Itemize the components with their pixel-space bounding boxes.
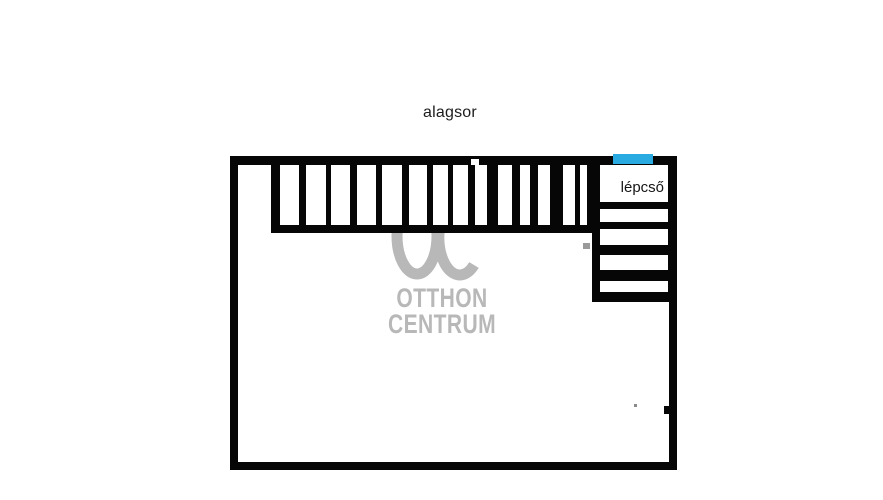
entrance-marker bbox=[613, 154, 653, 164]
storage-cells bbox=[271, 156, 600, 233]
storage-cell bbox=[538, 165, 550, 225]
stair-step bbox=[600, 255, 668, 270]
oc-logo-icon bbox=[0, 0, 883, 500]
staircase bbox=[592, 156, 677, 302]
watermark-line-1: OTTHON bbox=[364, 285, 520, 312]
storage-cell bbox=[382, 165, 402, 225]
wall-bottom bbox=[230, 462, 677, 470]
storage-cell bbox=[520, 165, 530, 225]
watermark-line-2: CENTRUM bbox=[364, 311, 520, 338]
wall-notch bbox=[664, 406, 669, 414]
stair-step bbox=[600, 229, 668, 245]
gray-dot-mark bbox=[634, 404, 637, 407]
stair-step bbox=[600, 281, 668, 292]
storage-cell bbox=[475, 165, 487, 225]
wall-left bbox=[230, 156, 238, 470]
gray-dash-mark bbox=[583, 243, 590, 249]
storage-cell bbox=[280, 165, 299, 225]
storage-cell bbox=[580, 165, 587, 225]
storage-cell bbox=[409, 165, 427, 225]
storage-cell bbox=[331, 165, 350, 225]
wall-gap-mark bbox=[471, 159, 479, 165]
storage-cell bbox=[433, 165, 448, 225]
floor-plan-page: alagsor OTTHON CENTRUM lépcső bbox=[0, 0, 883, 500]
staircase-label: lépcső bbox=[598, 179, 667, 197]
otthon-centrum-watermark: OTTHON CENTRUM bbox=[0, 0, 883, 500]
storage-cell bbox=[563, 165, 575, 225]
stair-step bbox=[600, 209, 668, 222]
storage-cell bbox=[357, 165, 376, 225]
page-title: alagsor bbox=[230, 104, 670, 122]
storage-cell bbox=[306, 165, 326, 225]
storage-cell bbox=[498, 165, 512, 225]
storage-cell bbox=[453, 165, 468, 225]
